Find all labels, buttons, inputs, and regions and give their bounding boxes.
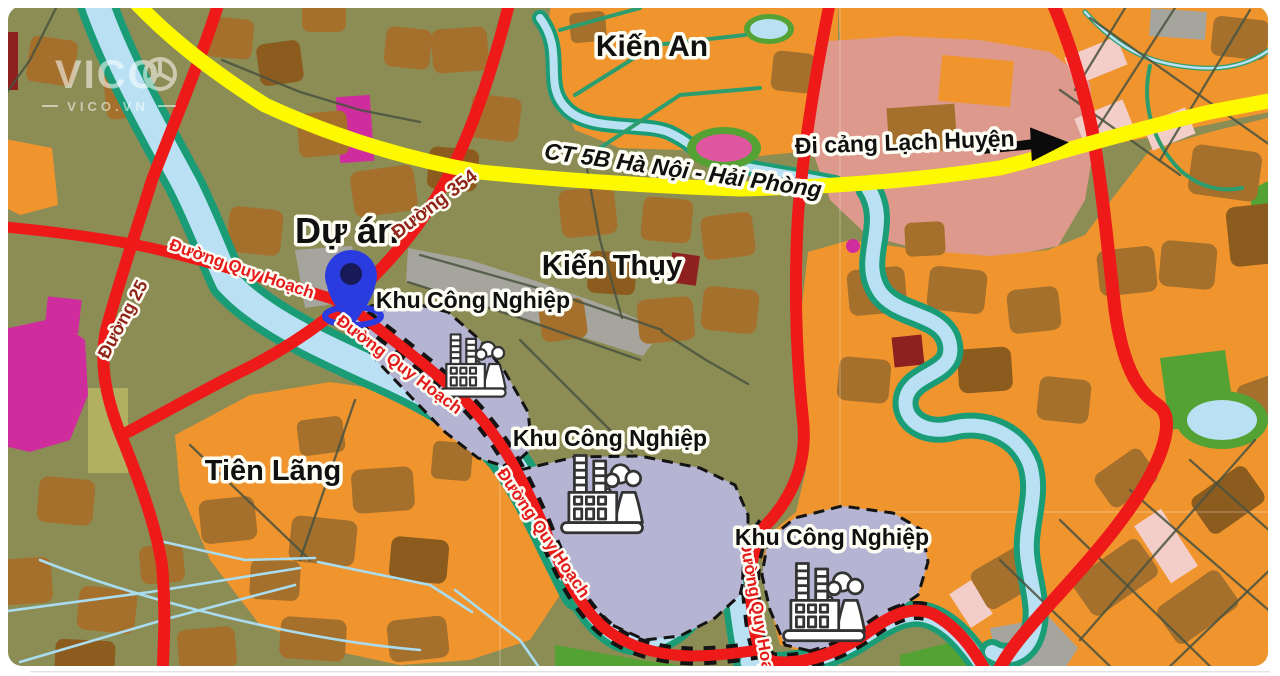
watermark-url: VICO.VN (67, 99, 148, 114)
map-canvas: Kiến An CT 5B Hà Nội - Hải Phòng Đi cảng… (0, 0, 1280, 676)
label-tien-lang: Tiên Lãng (205, 455, 341, 487)
bottom-hairline (30, 671, 1270, 672)
label-industrial-zone-1: Khu Công Nghiệp (376, 287, 570, 313)
map-area: Kiến An CT 5B Hà Nội - Hải Phòng Đi cảng… (0, 0, 1280, 676)
label-kien-thuy: Kiến Thụy (542, 250, 682, 282)
label-du-an: Dự án (295, 210, 399, 251)
label-industrial-zone-3: Khu Công Nghiệp (735, 524, 929, 550)
label-kien-an: Kiến An (596, 30, 708, 63)
planning-map: Kiến An CT 5B Hà Nội - Hải Phòng Đi cảng… (0, 0, 1280, 676)
label-industrial-zone-2: Khu Công Nghiệp (513, 425, 707, 451)
